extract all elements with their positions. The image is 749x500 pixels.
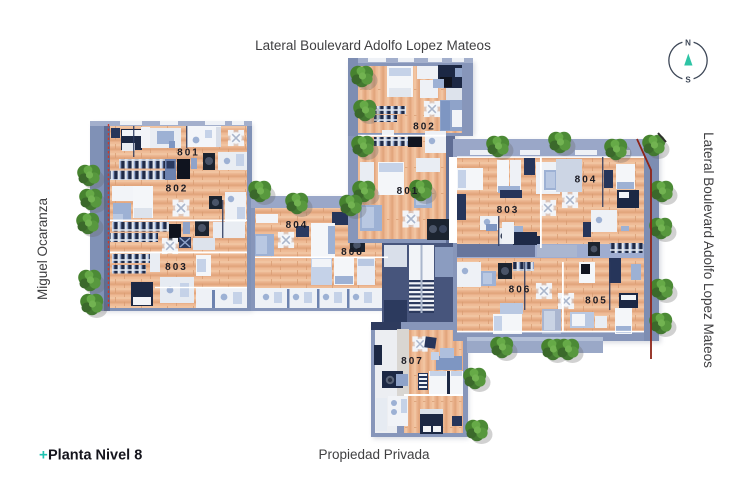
svg-text:806: 806 (509, 285, 532, 296)
svg-text:804: 804 (575, 175, 598, 186)
svg-text:N: N (685, 39, 691, 48)
svg-text:802: 802 (413, 122, 436, 133)
svg-text:Lateral Boulevard Adolfo Lopez: Lateral Boulevard Adolfo Lopez Mateos (255, 38, 491, 53)
svg-text:+: + (39, 447, 48, 464)
svg-text:S: S (685, 76, 691, 85)
svg-text:801: 801 (397, 186, 420, 197)
svg-text:802: 802 (166, 184, 189, 195)
svg-text:Lateral Boulevard Adolfo Lopez: Lateral Boulevard Adolfo Lopez Mateos (701, 132, 716, 368)
svg-text:808: 808 (341, 247, 364, 258)
svg-text:804: 804 (286, 220, 309, 231)
svg-text:803: 803 (165, 262, 188, 273)
svg-text:Planta Nivel 8: Planta Nivel 8 (48, 448, 142, 464)
svg-text:807: 807 (401, 356, 424, 367)
svg-text:Propiedad Privada: Propiedad Privada (318, 447, 430, 462)
svg-text:805: 805 (585, 296, 608, 307)
svg-text:803: 803 (497, 205, 520, 216)
svg-text:Miguel Ocaranza: Miguel Ocaranza (35, 197, 50, 300)
svg-text:801: 801 (177, 148, 200, 159)
